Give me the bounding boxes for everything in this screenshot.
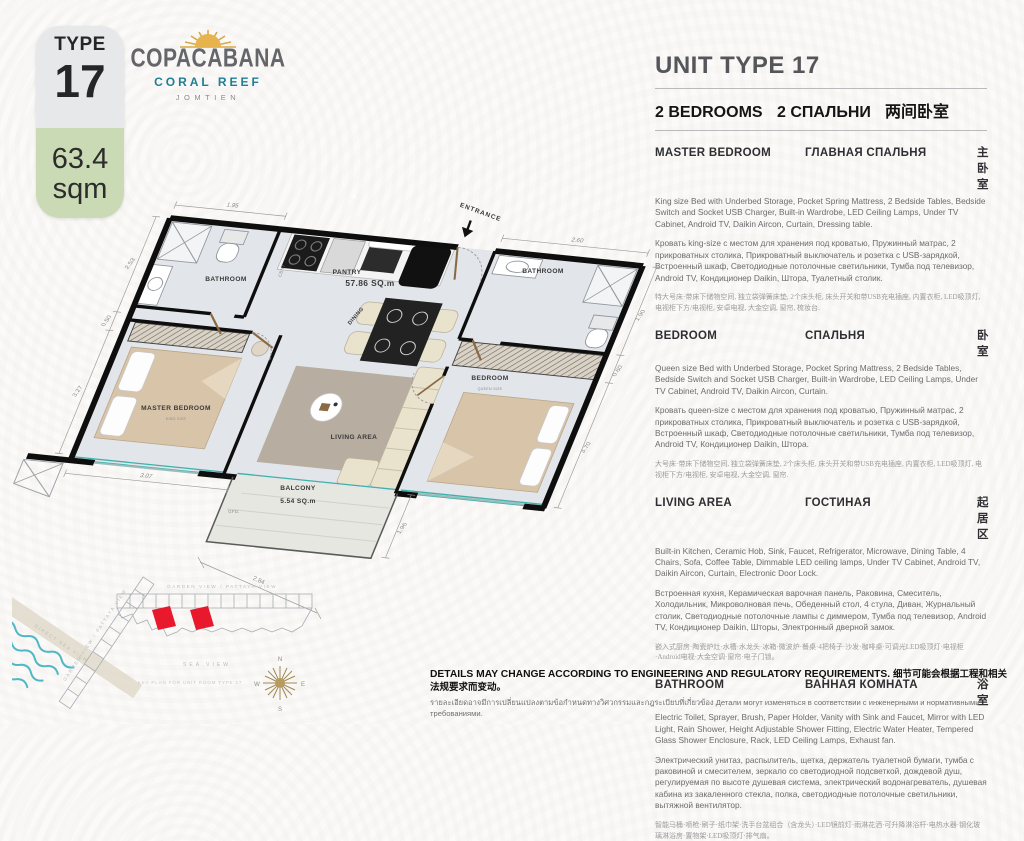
compass-icon: N E S W: [254, 657, 305, 713]
section-heading: BEDROOM СПАЛЬНЯ 卧室: [655, 327, 987, 359]
sea-view-label: SEA VIEW: [183, 662, 231, 668]
body-en: Queen size Bed with Underbed Storage, Po…: [655, 363, 987, 397]
master-bedroom-label: MASTER BEDROOM: [141, 405, 211, 412]
brand-logo: COPACABANA CORAL REEF JOMTIEN: [130, 26, 286, 102]
section-bedroom: BEDROOM СПАЛЬНЯ 卧室 Queen size Bed with U…: [655, 327, 987, 481]
brand-name: COPACABANA: [130, 45, 286, 71]
body-en: Built-in Kitchen, Ceramic Hob, Sink, Fau…: [655, 546, 987, 580]
body-ru: Кровать queen-size с местом для хранения…: [655, 405, 987, 451]
unit-type-top: TYPE 17: [36, 26, 124, 128]
heading-ru: ГЛАВНАЯ СПАЛЬНЯ: [805, 147, 977, 159]
spec-column: UNIT TYPE 17 2 BEDROOMS 2 СПАЛЬНИ 两间卧室 M…: [655, 52, 987, 841]
key-plan: DIRECT SEA VIEW GARDEN VIEW / PATTAYA VI…: [12, 548, 347, 720]
dim-right-top: 1.90: [634, 309, 648, 322]
body-ru: Кровать king-size с местом для хранения …: [655, 238, 987, 284]
building-wing-horizontal: GARDEN VIEW / PATTAYA VIEW SEA VIEW KEY …: [117, 584, 312, 685]
bedroom-label: BEDROOM: [471, 375, 508, 382]
dim-bottom-left: 3.07: [139, 472, 154, 480]
entrance-arrow-icon: [459, 218, 476, 239]
body-zh: 嵌入式厨房·陶瓷炉灶·水槽·水龙头·冰箱·微波炉·餐桌·4把椅子·沙发·咖啡桌·…: [655, 642, 987, 664]
dim-right-mid: 0.60: [611, 364, 625, 377]
title-divider: [655, 88, 987, 89]
heading-en: LIVING AREA: [655, 497, 805, 509]
heading-zh: 卧室: [977, 327, 989, 359]
sea-waves: DIRECT SEA VIEW: [12, 590, 142, 720]
king-size-label: KING SIZE: [166, 417, 187, 421]
bedrooms-en: 2 BEDROOMS: [655, 104, 777, 122]
heading-zh: 起居区: [977, 494, 989, 542]
brand-tagline: CORAL REEF: [130, 75, 286, 89]
fridge-label: F: [428, 218, 432, 224]
garden-view-label: GARDEN VIEW / PATTAYA VIEW: [167, 584, 277, 589]
compass-s: S: [278, 707, 282, 713]
bathroom1-label: BATHROOM: [205, 276, 247, 283]
highlighted-unit-2: [190, 606, 214, 630]
balcony-label: BALCONY: [280, 485, 316, 492]
dim-bathroom2-width: 2.60: [570, 237, 585, 245]
pantry-label: PANTRY: [333, 269, 362, 276]
disclaimer-en: DETAILS MAY CHANGE ACCORDING TO ENGINEER…: [430, 669, 890, 680]
dim-right-wall: 3.70: [579, 441, 593, 454]
heading-en: BEDROOM: [655, 330, 805, 342]
living-area-label: LIVING AREA: [331, 434, 378, 441]
washer-label: W: [352, 194, 357, 200]
body-zh: 特大号床·带床下储物空间, 独立袋弹簧床垫, 2个床头柜, 床头开关和带USB充…: [655, 292, 987, 314]
disclaimer: DETAILS MAY CHANGE ACCORDING TO ENGINEER…: [430, 668, 1012, 718]
brochure-page: { "badge": {"type_label": "TYPE", "type_…: [0, 0, 1024, 724]
compass-e: E: [301, 682, 305, 688]
heading-zh: 主卧室: [977, 144, 989, 192]
entrance-label: ENTRANCE: [459, 202, 502, 223]
body-ru: Встроенная кухня, Керамическая варочная …: [655, 588, 987, 634]
heading-en: MASTER BEDROOM: [655, 147, 805, 159]
section-master-bedroom: MASTER BEDROOM ГЛАВНАЯ СПАЛЬНЯ 主卧室 King …: [655, 144, 987, 314]
highlighted-unit-1: [152, 606, 176, 630]
bedrooms-zh: 两间卧室: [885, 98, 987, 122]
section-living-area: LIVING AREA ГОСТИНАЯ 起居区 Built-in Kitche…: [655, 494, 987, 664]
compass-n: N: [278, 657, 282, 663]
dim-balcony-side: 1.96: [395, 521, 409, 534]
type-label: TYPE: [36, 34, 124, 56]
compass-w: W: [254, 682, 260, 688]
queen-size-label: QUEEN SIZE: [478, 387, 503, 391]
brand-location: JOMTIEN: [130, 93, 286, 102]
body-zh: 大号床·带床下储物空间, 独立袋弹簧床垫, 2个床头柜, 床头开关和带USB充电…: [655, 459, 987, 481]
dim-bathroom1-width: 1.95: [225, 202, 240, 210]
bathroom2-label: BATHROOM: [522, 268, 564, 275]
gfd-label: GFD.: [228, 509, 240, 514]
body-en: King size Bed with Underbed Storage, Poc…: [655, 196, 987, 230]
body-ru: Электрический унитаз, распылитель, щетка…: [655, 755, 987, 812]
heading-ru: ГОСТИНАЯ: [805, 497, 977, 509]
section-heading: LIVING AREA ГОСТИНАЯ 起居区: [655, 494, 987, 542]
page-title: UNIT TYPE 17: [655, 52, 987, 80]
bedrooms-row: 2 BEDROOMS 2 СПАЛЬНИ 两间卧室: [655, 98, 987, 122]
plan-geometry: 1.95 2.60 2.53 0.50 3.27 3.07 1.90 0.60 …: [10, 192, 670, 575]
section-heading: MASTER BEDROOM ГЛАВНАЯ СПАЛЬНЯ 主卧室: [655, 144, 987, 192]
balcony-area-label: 5.54 SQ.m: [280, 498, 316, 505]
body-zh: 智能马桶·喷枪·刷子·纸巾架·洗手台盆组合（含龙头）·LED镜前灯·雨淋花洒·可…: [655, 820, 987, 841]
subtitle-divider: [655, 130, 987, 131]
total-area-label: 57.86 SQ.m: [345, 278, 394, 288]
keyplan-caption: KEY PLAN FOR UNIT ROOM TYPE 17: [138, 680, 242, 685]
ac-ledge: [10, 459, 63, 496]
heading-ru: СПАЛЬНЯ: [805, 330, 977, 342]
disclaimer-th: รายละเอียดอาจมีการเปลี่ยนแปลงตามข้อกำหนด…: [430, 698, 714, 707]
bedrooms-ru: 2 СПАЛЬНИ: [777, 104, 885, 122]
type-number: 17: [36, 58, 124, 104]
